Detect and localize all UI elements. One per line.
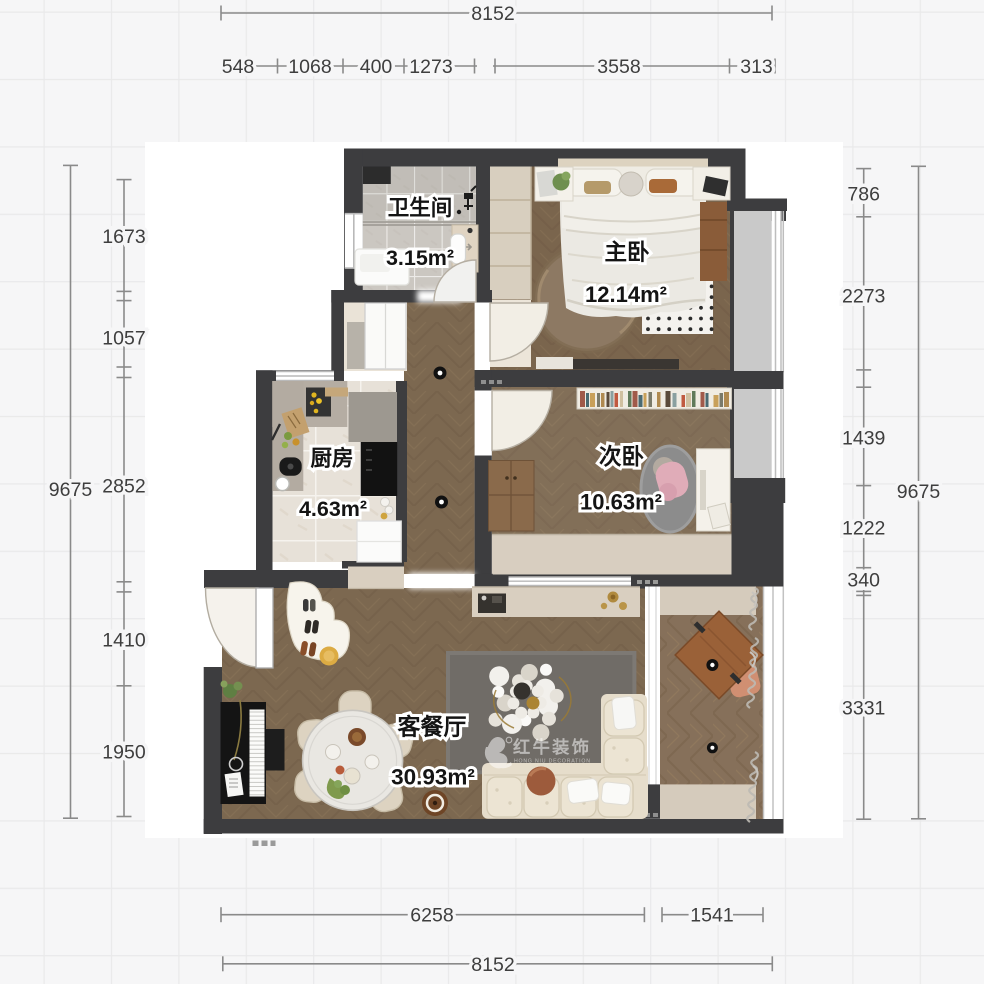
svg-text:红牛装饰: 红牛装饰 — [513, 737, 591, 757]
svg-text:1410: 1410 — [102, 630, 146, 652]
svg-text:786: 786 — [847, 184, 880, 206]
svg-text:卫生间: 卫生间 — [388, 196, 453, 220]
svg-text:1439: 1439 — [842, 428, 885, 450]
svg-text:HONG NIU DECORATION: HONG NIU DECORATION — [514, 759, 591, 765]
svg-text:9675: 9675 — [897, 481, 941, 503]
svg-text:厨房: 厨房 — [310, 446, 353, 471]
svg-text:1673: 1673 — [102, 226, 145, 248]
svg-text:3558: 3558 — [597, 56, 640, 78]
svg-text:548: 548 — [222, 56, 255, 78]
svg-text:1273: 1273 — [409, 56, 452, 78]
svg-text:1950: 1950 — [102, 742, 146, 764]
svg-text:1222: 1222 — [842, 518, 885, 540]
svg-text:1068: 1068 — [288, 56, 331, 78]
svg-text:客餐厅: 客餐厅 — [398, 714, 467, 740]
svg-text:3331: 3331 — [842, 698, 885, 720]
svg-text:30.93m²: 30.93m² — [391, 765, 475, 790]
svg-text:4.63m²: 4.63m² — [299, 497, 367, 521]
svg-text:2852: 2852 — [102, 476, 145, 498]
svg-text:313: 313 — [740, 56, 773, 78]
svg-text:8152: 8152 — [471, 954, 514, 976]
svg-text:2273: 2273 — [842, 286, 885, 308]
svg-text:340: 340 — [847, 570, 880, 592]
svg-text:400: 400 — [360, 56, 393, 78]
svg-text:10.63m²: 10.63m² — [580, 490, 662, 515]
svg-text:3.15m²: 3.15m² — [386, 246, 454, 270]
svg-text:12.14m²: 12.14m² — [585, 282, 667, 307]
svg-text:9675: 9675 — [49, 479, 93, 501]
svg-text:6258: 6258 — [410, 905, 453, 927]
svg-text:1541: 1541 — [690, 905, 733, 927]
svg-text:1057: 1057 — [102, 328, 145, 350]
svg-text:主卧: 主卧 — [604, 240, 650, 265]
svg-text:8152: 8152 — [471, 3, 514, 25]
svg-text:次卧: 次卧 — [599, 444, 645, 470]
